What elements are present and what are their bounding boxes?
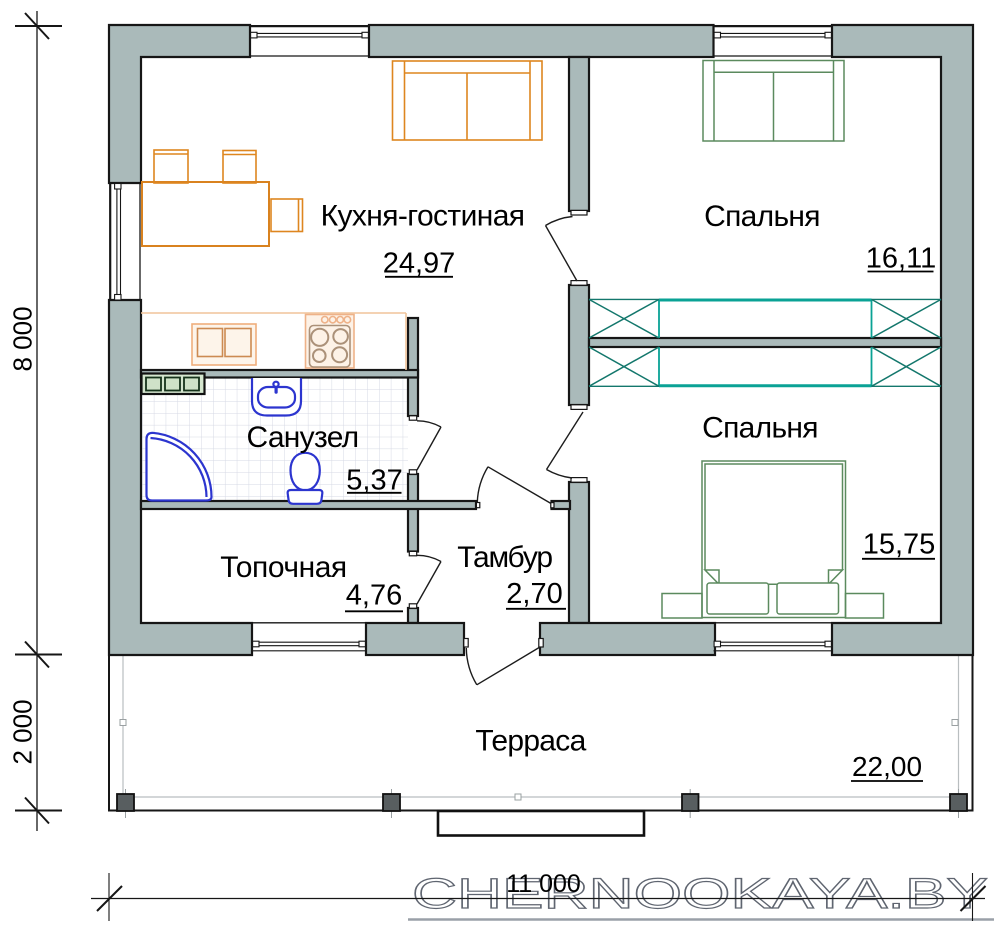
svg-text:Спальня: Спальня — [702, 412, 818, 445]
svg-text:24,97: 24,97 — [383, 248, 456, 280]
svg-text:11 000: 11 000 — [506, 870, 581, 898]
svg-text:4,76: 4,76 — [346, 580, 402, 612]
svg-text:Санузел: Санузел — [247, 421, 359, 454]
svg-text:Тамбур: Тамбур — [457, 541, 552, 574]
svg-text:2 000: 2 000 — [8, 699, 38, 764]
svg-text:5,37: 5,37 — [346, 465, 402, 497]
svg-text:Спальня: Спальня — [704, 200, 820, 233]
svg-text:22,00: 22,00 — [852, 751, 922, 782]
svg-text:CHERNOOKAYA.BY: CHERNOOKAYA.BY — [412, 870, 988, 918]
svg-text:Кухня-гостиная: Кухня-гостиная — [321, 199, 525, 232]
svg-text:Терраса: Терраса — [475, 725, 586, 758]
svg-text:Топочная: Топочная — [220, 551, 346, 584]
svg-text:2,70: 2,70 — [506, 578, 562, 610]
svg-text:8 000: 8 000 — [8, 306, 38, 371]
svg-text:15,75: 15,75 — [863, 529, 936, 561]
svg-text:16,11: 16,11 — [866, 243, 936, 275]
